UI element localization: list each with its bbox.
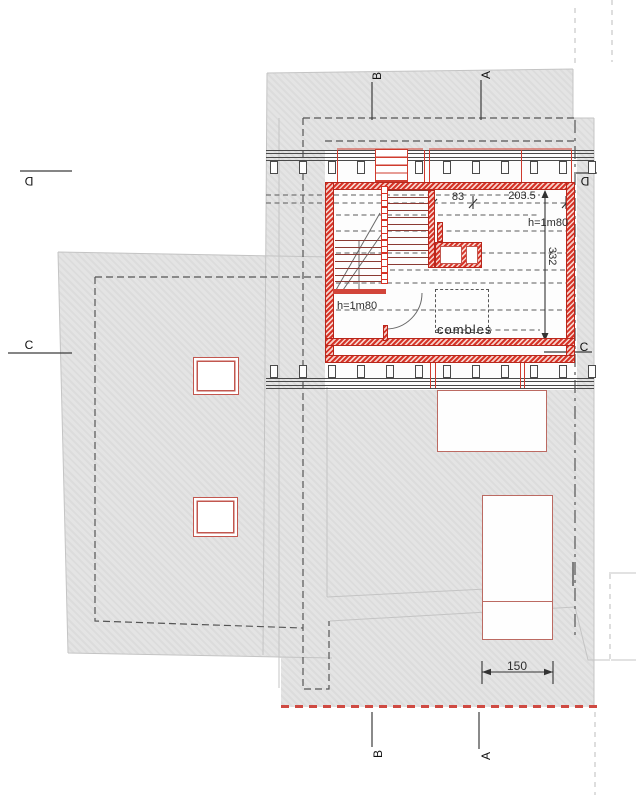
red-structure-line xyxy=(571,150,572,182)
stair-tread xyxy=(388,210,428,211)
roof-post xyxy=(270,161,278,174)
roof-post xyxy=(472,365,480,378)
stair-tread xyxy=(388,190,428,191)
stair-tread xyxy=(388,250,428,251)
ladder-rung xyxy=(382,233,387,234)
stair-tread xyxy=(388,203,428,204)
wall-bottom-inner xyxy=(325,355,575,363)
skylight-window-upper xyxy=(193,357,239,395)
height-note-left: h=1m80 xyxy=(337,300,377,312)
roof-post xyxy=(443,161,451,174)
ladder-rung xyxy=(382,239,387,240)
wall-bottom-outer xyxy=(325,338,575,346)
roof-post xyxy=(530,161,538,174)
roof-post xyxy=(472,161,480,174)
section-marker-c-right: C xyxy=(576,339,592,355)
boiler-strip xyxy=(437,222,443,242)
ladder-rung xyxy=(382,193,387,194)
red-structure-line xyxy=(520,363,521,388)
dim-203-5: 203.5 xyxy=(502,190,542,202)
roof-post xyxy=(588,365,596,378)
section-marker-a-top: A xyxy=(478,67,494,83)
height-note-right: h=1m80 xyxy=(528,217,568,229)
stair-tread xyxy=(335,281,381,282)
framing-band-line xyxy=(266,388,594,389)
bathroom-fixture-left xyxy=(440,246,462,264)
roof-post xyxy=(559,365,567,378)
chimney-block xyxy=(375,149,408,182)
ladder-rung xyxy=(382,259,387,260)
ladder-rung xyxy=(382,252,387,253)
section-marker-d-right: D xyxy=(577,173,593,189)
red-structure-line xyxy=(424,150,425,182)
roof-post xyxy=(530,365,538,378)
dim-150: 150 xyxy=(502,659,532,673)
stair-tread xyxy=(388,197,428,198)
ladder-rung xyxy=(382,266,387,267)
stair-tread xyxy=(388,230,428,231)
roof-post xyxy=(415,365,423,378)
roof-post xyxy=(270,365,278,378)
wall-top xyxy=(325,182,575,190)
roof-opening-divider xyxy=(482,601,553,602)
floor-plan-canvas: combles 83 203.5 h=1m80 332 h=1m80 150 B… xyxy=(0,0,636,800)
ladder-rung xyxy=(382,246,387,247)
stair-tread xyxy=(335,261,381,262)
ladder-rung xyxy=(382,213,387,214)
roof-post xyxy=(299,365,307,378)
red-structure-line xyxy=(521,150,522,182)
roof-post xyxy=(357,161,365,174)
section-marker-b-bottom: B xyxy=(370,746,386,762)
stair-tread xyxy=(388,237,428,238)
skylight-window-lower xyxy=(193,497,238,537)
stair-tread xyxy=(335,240,381,241)
ladder-rung xyxy=(382,206,387,207)
wall-right xyxy=(566,182,575,363)
red-structure-line xyxy=(337,150,338,182)
ladder-rung xyxy=(382,272,387,273)
door-leaf xyxy=(383,325,388,341)
red-structure-line xyxy=(524,363,525,388)
stair-tread xyxy=(388,264,428,265)
roof-post xyxy=(386,365,394,378)
stair-tread xyxy=(335,275,381,276)
red-structure-line xyxy=(430,363,431,388)
stair-tread xyxy=(335,247,381,248)
roof-post xyxy=(501,161,509,174)
wall-interior-vertical xyxy=(428,190,435,268)
dim-83: 83 xyxy=(447,191,469,203)
roof-opening-top xyxy=(437,390,547,452)
stair-tread xyxy=(335,254,381,255)
ladder-rung xyxy=(382,200,387,201)
roof-opening-long xyxy=(482,495,553,640)
ladder-rung xyxy=(382,226,387,227)
roof-post xyxy=(357,365,365,378)
section-marker-b-top: B xyxy=(369,68,385,84)
roof-post xyxy=(328,365,336,378)
stair-tread xyxy=(388,257,428,258)
section-marker-d-left: D xyxy=(21,173,37,189)
roof-post xyxy=(328,161,336,174)
ladder-rung xyxy=(382,219,387,220)
stair-tread xyxy=(335,268,381,269)
stair-tread xyxy=(388,224,428,225)
section-marker-c-left: C xyxy=(21,337,37,353)
bathroom-fixture-right xyxy=(466,246,478,264)
boundary-dashed-line xyxy=(281,705,597,708)
section-marker-a-bottom: A xyxy=(478,748,494,764)
wall-left xyxy=(325,182,334,363)
roof-post xyxy=(559,161,567,174)
stair-tread xyxy=(388,217,428,218)
stair-tread xyxy=(388,244,428,245)
roof-post xyxy=(501,365,509,378)
dim-332: 332 xyxy=(546,247,558,265)
roof-post xyxy=(299,161,307,174)
roof-post xyxy=(415,161,423,174)
red-structure-line xyxy=(429,150,430,182)
room-label: combles xyxy=(437,322,492,337)
roof-post xyxy=(443,365,451,378)
wall-interior-horizontal xyxy=(333,289,386,294)
stair-ladder xyxy=(381,186,388,284)
red-structure-line xyxy=(435,363,436,388)
ladder-rung xyxy=(382,279,387,280)
